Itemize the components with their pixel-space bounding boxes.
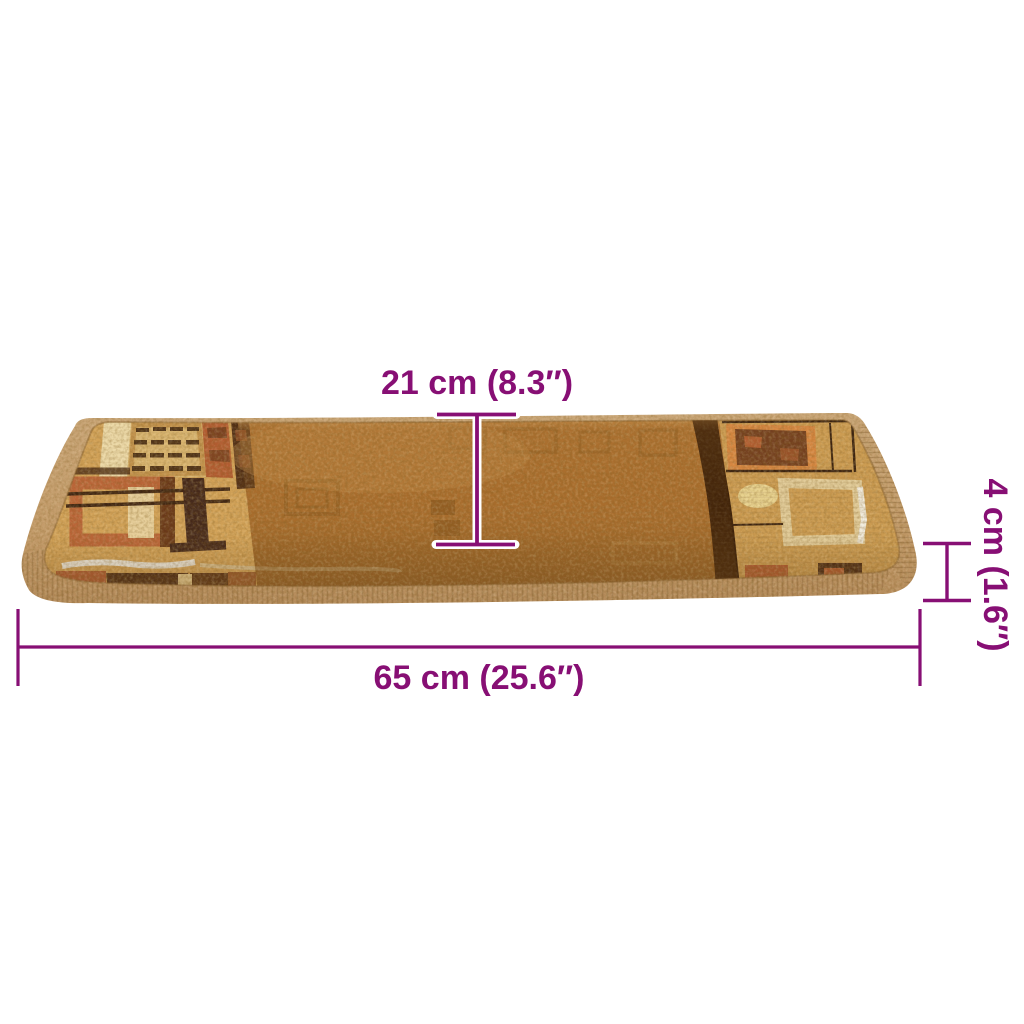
svg-text:21 cm (8.3″): 21 cm (8.3″) bbox=[381, 364, 573, 402]
svg-text:4 cm (1.6″): 4 cm (1.6″) bbox=[976, 478, 1014, 651]
svg-text:65 cm (25.6″): 65 cm (25.6″) bbox=[374, 659, 585, 697]
